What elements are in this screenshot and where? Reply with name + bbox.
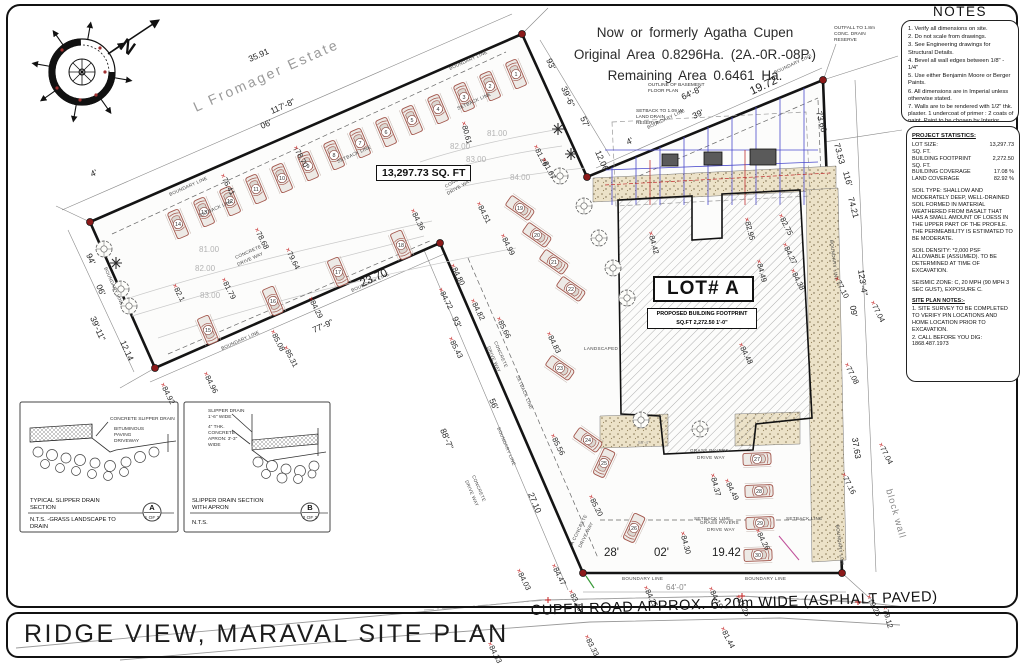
plan-label: WITH APRON	[192, 505, 229, 511]
stall-number: 23	[557, 366, 563, 372]
stall-number: 7	[359, 141, 362, 147]
note-item: 7. Walls are to be rendered with 1/2" th…	[908, 104, 1014, 122]
note-item: 1. Verify all dimensions on site.	[908, 26, 1014, 33]
stall-number: 22	[568, 287, 574, 293]
plan-label: DRIVEWAY	[114, 438, 140, 444]
annotation-line-1: Now or formerly Agatha Cupen	[558, 22, 832, 44]
stat-row: LOT SIZE: 13,297.73	[912, 142, 1014, 149]
stat-value: 13,297.73	[990, 142, 1014, 149]
stat-row: SQ. FT.	[912, 163, 1014, 170]
plan-label: ×84.72	[436, 286, 455, 311]
plan-label: 27.10	[526, 491, 544, 515]
plan-label: PAVING	[114, 432, 132, 438]
plan-label: 39'-11"	[88, 315, 108, 343]
plan-label: WIDE	[208, 442, 221, 448]
plan-label: GRASS PAVERS	[700, 520, 739, 525]
plan-label: 57'	[578, 115, 592, 130]
stall-number: 5	[411, 118, 414, 124]
seismic-text: SEISMIC ZONE: C, 20 MPH (90 MPH 3 SEC GU…	[912, 280, 1014, 294]
stall-number: 11	[253, 187, 259, 193]
plan-label: 09'	[848, 305, 860, 318]
plan-label: 12.06	[593, 149, 611, 173]
footprint-label: PROPOSED BUILDING FOOTPRINT SQ.FT 2,272.…	[647, 308, 757, 329]
stall-number: 24	[585, 438, 591, 444]
stall-number: 21	[551, 260, 557, 266]
note-item: 2. Do not scale from drawings.	[908, 34, 1014, 41]
lot-name-label: LOT# A	[653, 276, 754, 302]
plan-label: 58'-4"	[638, 440, 650, 445]
parcel-annotation: Now or formerly Agatha Cupen Original Ar…	[558, 22, 832, 87]
plan-label: 1'-6" WIDE	[208, 414, 231, 420]
plan-label: 73.53	[832, 142, 847, 165]
stat-row: BUILDING FOOTPRINT 2,272.50	[912, 156, 1014, 163]
soil-type-text: SOIL TYPE: SHALLOW AND MODERATELY DEEP, …	[912, 188, 1014, 243]
stall-number: 20	[534, 233, 540, 239]
stat-row: BUILDING COVERAGE 17.08 %	[912, 169, 1014, 176]
plan-label: 06'	[94, 283, 108, 298]
plan-label: SLIPPER DRAIN	[208, 408, 245, 414]
stat-label: LOT SIZE:	[912, 142, 938, 149]
plan-label: 93'	[544, 57, 558, 72]
plan-label: RESERVE	[636, 120, 659, 126]
page-title: RIDGE VIEW, MARAVAL SITE PLAN	[24, 620, 509, 649]
plan-label: GRASS PAVERS	[690, 448, 729, 453]
site-plan-notes-title: SITE PLAN NOTES:-	[912, 298, 1014, 305]
site-plan-drawing: 1234567891011121314151617181920212223242…	[0, 0, 1024, 664]
stall-number: 2	[489, 84, 492, 90]
plan-label: 12.14	[118, 339, 136, 363]
stat-label: LAND COVERAGE	[912, 176, 959, 183]
plan-label: CONC. DRAIN	[834, 31, 866, 37]
plan-label: 94'	[84, 252, 98, 267]
plan-label: 35.91	[247, 46, 271, 64]
plan-label: 83.00	[200, 291, 221, 300]
lot-area-label: 13,297.73 SQ. FT	[376, 165, 471, 181]
plan-label: DRIVE WAY	[707, 527, 735, 532]
stat-label: BUILDING FOOTPRINT	[912, 156, 971, 163]
plan-label: N	[116, 35, 139, 60]
plan-label: ×77.04	[876, 441, 895, 466]
note-item: 4. Bevel all wall edges between 1/8" - 1…	[908, 58, 1014, 72]
annotation-line-3: Remaining Area 0.6461 Ha.	[558, 65, 832, 87]
stat-row: LAND COVERAGE 82.92 %	[912, 176, 1014, 183]
plan-label: BOUNDARY LINE	[745, 576, 786, 581]
stall-number: 6	[385, 130, 388, 136]
notes-title: NOTES	[901, 4, 1019, 19]
stall-number: 1	[515, 72, 518, 78]
soil-density-text: SOIL DENSITY: *2,000 PSF ALLOWABLE (ASSU…	[912, 248, 1014, 275]
stall-number: 29	[757, 521, 763, 527]
parking-stall: 28	[745, 483, 774, 500]
plan-label: DRIVE WAY	[697, 455, 725, 460]
plan-label: 81.00	[199, 245, 220, 254]
stall-number: 15	[205, 328, 211, 334]
plan-label: RESERVE	[834, 37, 857, 43]
compass-rose	[35, 22, 156, 119]
annotation-line-2: Original Area 0.8296Ha. (2A.-0R.-08P.)	[558, 44, 832, 66]
plan-label: DRAIN	[30, 524, 48, 530]
stat-label: BUILDING COVERAGE	[912, 169, 971, 176]
plan-label: SECTION	[30, 505, 56, 511]
plan-label: 39'	[691, 107, 706, 121]
plan-label: BITUMINOUS	[114, 426, 144, 432]
stall-number: 27	[754, 457, 760, 463]
plan-label: 77'-9"	[311, 317, 335, 335]
plan-label: 88'-7"	[438, 427, 456, 451]
stall-number: 25	[601, 461, 607, 467]
plan-label: 64'-0"	[666, 583, 687, 592]
plan-label: ×84.96	[201, 370, 220, 395]
plan-label: N.T.S. -GRASS LANDSCAPE TO	[30, 517, 116, 523]
plan-label: 56'	[487, 397, 501, 411]
note-item: 5. Use either Benjamin Moore or Berger P…	[908, 73, 1014, 87]
stat-row: SQ. FT.	[912, 149, 1014, 156]
plan-label: 4" THK.	[208, 424, 225, 430]
notes-box: 1. Verify all dimensions on site. 2. Do …	[901, 20, 1019, 122]
plan-label: SETBACK LINE	[786, 516, 823, 521]
plan-label: ×84.03	[514, 567, 533, 592]
stall-number: 10	[279, 176, 285, 182]
stat-label: SQ. FT.	[912, 163, 931, 170]
plan-label: ×77.04	[868, 299, 887, 324]
stall-number: 3	[463, 95, 466, 101]
plan-label: CONCRETE SLIPPER DRAIN	[110, 416, 175, 422]
plan-label: OUTFALL TO 1.8m	[834, 25, 875, 31]
stall-number: 16	[270, 299, 276, 305]
plan-label: 83.00	[466, 155, 487, 164]
note-item: 6. All dimensions are in Imperial unless…	[908, 89, 1014, 103]
stall-number: 17	[335, 270, 341, 276]
project-statistics-panel: PROJECT STATISTICS: LOT SIZE: 13,297.73 …	[906, 126, 1020, 382]
plan-label: 37.63	[850, 437, 863, 460]
plan-label: LAND DRAIN	[636, 114, 666, 120]
notes-panel: NOTES 1. Verify all dimensions on site. …	[901, 4, 1019, 122]
stall-number: 28	[756, 489, 762, 495]
plan-label: 93'	[450, 315, 464, 329]
stall-number: 18	[398, 243, 404, 249]
plan-label: BOUNDARY LINE	[496, 426, 517, 466]
plan-label: 84.00	[510, 173, 531, 182]
stall-number: 8	[333, 153, 336, 159]
stats-title: PROJECT STATISTICS:	[912, 133, 1014, 140]
plan-label: APRON: 3'-3"	[208, 436, 238, 442]
stall-number: 30	[755, 553, 761, 559]
plan-label: 81.00	[487, 129, 508, 138]
plan-label: ×85.31	[281, 344, 300, 369]
plan-label: 02'	[654, 547, 669, 559]
stat-value: 82.92 %	[994, 176, 1014, 183]
plan-label: 74.21	[846, 196, 861, 219]
site-plan-note: 1. SITE SURVEY TO BE COMPLETED TO VERIFY…	[912, 306, 1014, 333]
plan-label: 39'-6"	[559, 85, 577, 109]
plan-label: FLOOR PLAN	[648, 88, 679, 94]
parking-stall: 27	[743, 451, 772, 468]
plan-label: 123'-4"	[856, 269, 870, 297]
plan-label: 116'	[841, 170, 855, 188]
stat-label: SQ. FT.	[912, 149, 931, 156]
plan-label: 117'-8"	[269, 96, 297, 116]
plan-label: ×85.43	[446, 335, 465, 360]
plan-label: CONCRETE	[208, 430, 235, 436]
plan-label: block wall	[883, 488, 908, 540]
plan-label: 82.00	[195, 264, 216, 273]
stall-number: 26	[631, 526, 637, 532]
plan-label: ×77.08	[842, 361, 861, 386]
plan-label: TYPICAL SLIPPER DRAIN	[30, 498, 100, 504]
plan-label: 19.42	[712, 547, 741, 559]
plan-label: 82.00	[450, 142, 471, 151]
plan-label: 4'	[625, 135, 635, 147]
stall-number: 4	[437, 107, 440, 113]
stall-number: 19	[517, 206, 523, 212]
plan-label: 4'	[89, 167, 99, 179]
plan-label: B	[307, 503, 313, 512]
stall-number: 14	[175, 222, 181, 228]
note-item: 3. See Engineering drawings for Structur…	[908, 42, 1014, 56]
plan-label: SETBACK TO 1.09 W	[636, 108, 683, 114]
detail-section-b	[184, 402, 330, 532]
site-plan-note: 2. CALL BEFORE YOU DIG: 1868.487.1973	[912, 335, 1014, 349]
plan-label: ×84.47	[549, 562, 568, 587]
stat-value: 2,272.50	[993, 156, 1014, 163]
plan-label: LANDSCAPED	[584, 346, 619, 351]
plan-label: A	[149, 503, 155, 512]
footprint-line-1: PROPOSED BUILDING FOOTPRINT	[650, 310, 754, 319]
plan-label: 28'	[604, 547, 619, 559]
plan-label: BOUNDARY LINE	[622, 576, 663, 581]
stat-value: 17.08 %	[994, 169, 1014, 176]
footprint-line-2: SQ.FT 2,272.50 1'-0"	[650, 319, 754, 328]
plan-label: N.T.S.	[192, 520, 208, 526]
plan-label: 1 OF 2	[145, 515, 160, 521]
plan-label: SLIPPER DRAIN SECTION	[192, 498, 264, 504]
plan-label: 2 OF 2	[303, 515, 318, 521]
